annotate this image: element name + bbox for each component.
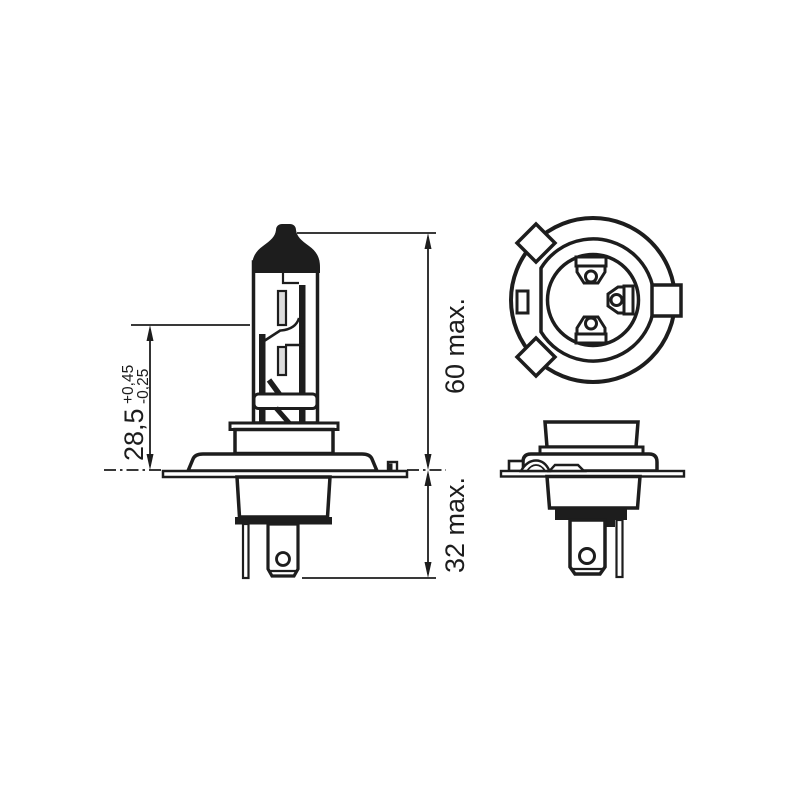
- spade-terminal-hole: [580, 549, 595, 564]
- dim-28-5-label: 28,5: [119, 408, 149, 461]
- terminal-right-hole: [611, 295, 622, 306]
- thin-terminal-pin: [243, 524, 249, 578]
- spring-clip-tongue: [550, 465, 585, 471]
- h4-bulb-technical-drawing: 28,5 +0,45 -0,25 60 max. 32 max.: [0, 0, 800, 800]
- base-body: [547, 477, 640, 509]
- terminal-bottom: [576, 317, 606, 343]
- dim-28-5-tol-minus: -0,25: [135, 369, 152, 404]
- technical-drawing-page: 28,5 +0,45 -0,25 60 max. 32 max.: [0, 0, 800, 800]
- terminal-top: [576, 257, 606, 283]
- base-side-view: [501, 422, 684, 577]
- slot-left: [517, 291, 528, 313]
- spade-terminal: [268, 524, 298, 576]
- high-beam-filament: [278, 291, 286, 325]
- arrow-up: [147, 325, 154, 341]
- flange-collar: [188, 454, 377, 471]
- bulb-side-view: [163, 224, 407, 578]
- pinch-seal: [254, 394, 317, 409]
- right-support-wire: [299, 285, 306, 395]
- terminal-bottom-hole: [586, 318, 597, 329]
- base-neck: [235, 430, 333, 454]
- terminal-top-hole: [586, 271, 597, 282]
- thin-terminal-pin: [617, 520, 623, 577]
- base-top-view: [511, 218, 681, 382]
- base-body: [237, 477, 330, 517]
- low-beam-filament: [278, 347, 286, 375]
- dim-32-max-label: 32 max.: [440, 477, 470, 573]
- black-notch: [606, 520, 615, 527]
- dim-60-max-label: 60 max.: [440, 298, 470, 394]
- arrow-up: [425, 470, 432, 486]
- spade-terminal: [570, 520, 605, 574]
- arrow-down: [425, 562, 432, 578]
- base-neck: [545, 422, 638, 447]
- black-tip-coating: [252, 224, 320, 273]
- dimension-28-5: 28,5 +0,45 -0,25: [119, 325, 250, 470]
- terminal-right: [608, 286, 633, 314]
- flange-tab-mark: [389, 464, 393, 471]
- arrow-up: [425, 233, 432, 249]
- spade-terminal-hole: [277, 553, 290, 566]
- index-tab-right: [652, 285, 681, 316]
- base-black-band: [555, 508, 627, 520]
- arrow-down: [425, 454, 432, 470]
